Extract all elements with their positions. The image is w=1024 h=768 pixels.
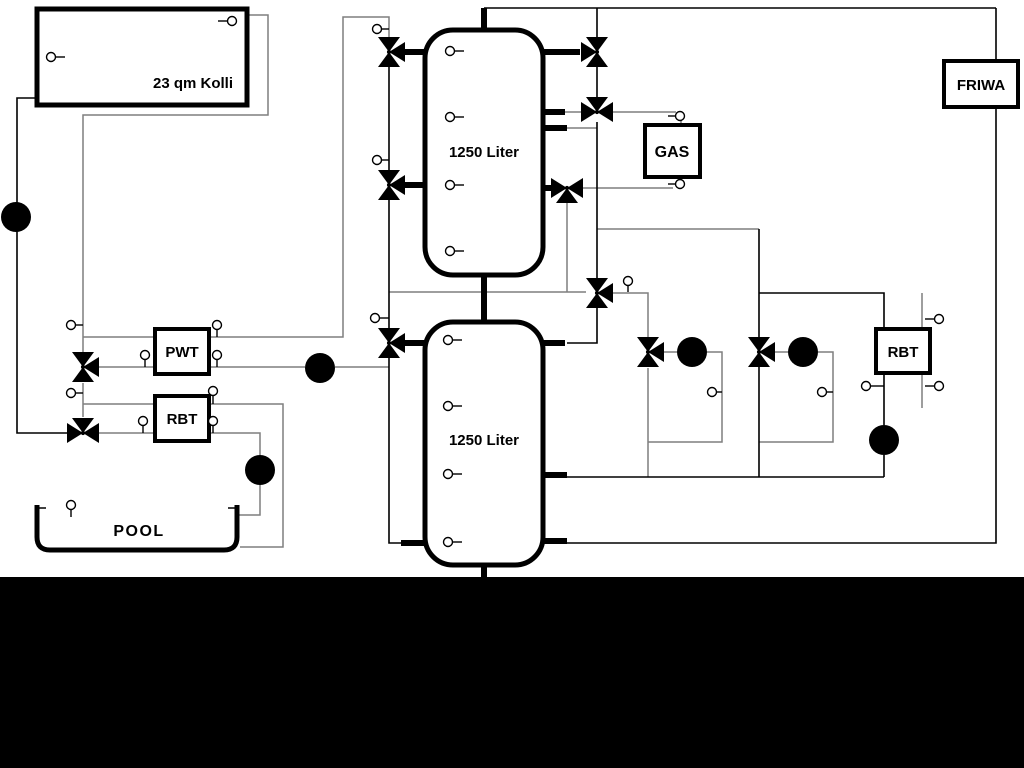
temp-sensor — [708, 388, 723, 397]
temp-sensor — [862, 382, 885, 391]
temp-sensor — [371, 314, 390, 323]
temp-sensor — [373, 25, 390, 34]
three-way-valve — [581, 97, 613, 122]
buffer-tank-upper: 1250 Liter — [425, 30, 543, 275]
hydraulic-schematic: 23 qm Kolli 1250 Liter 1250 Liter GAS FR… — [0, 0, 1024, 768]
three-way-valve — [581, 37, 608, 67]
tank-lower-label: 1250 Liter — [449, 432, 519, 449]
three-way-valve — [67, 418, 99, 443]
gas-boiler: GAS — [645, 125, 700, 177]
temp-sensor — [67, 321, 84, 330]
temp-sensor — [67, 501, 76, 518]
temp-sensor — [213, 351, 222, 368]
temp-sensor — [67, 389, 84, 398]
temp-sensor — [213, 321, 222, 338]
pool-label: POOL — [113, 523, 164, 540]
gas-label: GAS — [655, 144, 690, 161]
schematic-canvas: 23 qm Kolli 1250 Liter 1250 Liter GAS FR… — [0, 0, 1024, 768]
pwt-label: PWT — [165, 344, 198, 361]
three-way-valve — [378, 170, 405, 200]
collector-label: 23 qm Kolli — [153, 75, 233, 92]
temp-sensor — [141, 351, 150, 368]
three-way-valve — [378, 328, 405, 358]
three-way-valve — [378, 37, 405, 67]
temp-sensor — [624, 277, 633, 293]
solar-collector: 23 qm Kolli — [37, 9, 247, 105]
friwa-module: FRIWA — [944, 61, 1018, 107]
rbt-right-label: RBT — [888, 344, 919, 361]
tank-upper-label: 1250 Liter — [449, 144, 519, 161]
three-way-valve — [72, 352, 99, 382]
bottom-black-bar — [0, 577, 1024, 768]
three-way-valve — [748, 337, 775, 367]
temp-sensor — [668, 112, 685, 121]
temp-sensor — [373, 156, 390, 165]
buffer-tank-lower: 1250 Liter — [425, 322, 543, 565]
pump-pwt — [305, 353, 335, 383]
pwt-heat-exchanger: PWT — [155, 329, 209, 374]
three-way-valve — [637, 337, 664, 367]
rbt-right-heat-exchanger: RBT — [876, 329, 930, 373]
pool-basin: POOL — [37, 505, 237, 550]
pump-circuit-1 — [677, 337, 707, 367]
rbt-left-heat-exchanger: RBT — [155, 396, 209, 441]
three-way-valve — [551, 178, 583, 203]
temp-sensor — [139, 417, 148, 434]
pump-rbt-right — [869, 425, 899, 455]
three-way-valve — [586, 278, 613, 308]
pump-pool — [245, 455, 275, 485]
friwa-label: FRIWA — [957, 77, 1005, 94]
rbt-left-label: RBT — [167, 411, 198, 428]
pump-circuit-2 — [788, 337, 818, 367]
temp-sensor — [818, 388, 834, 397]
temp-sensor — [925, 315, 944, 324]
pump-solar — [1, 202, 31, 232]
temp-sensor — [668, 180, 685, 189]
temp-sensor — [925, 382, 944, 391]
